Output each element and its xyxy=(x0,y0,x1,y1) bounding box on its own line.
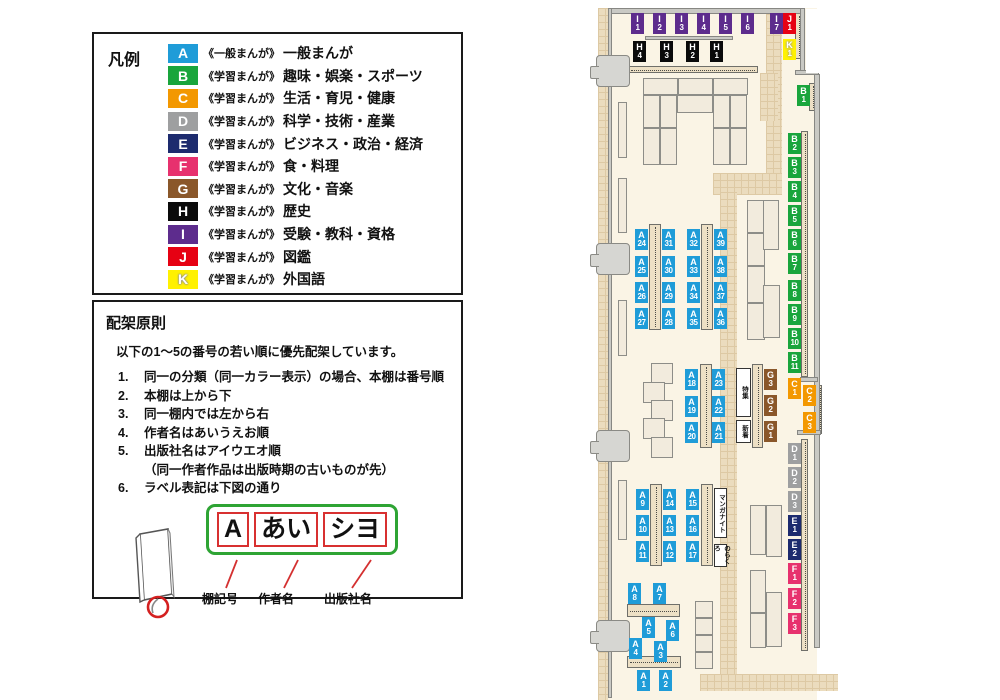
door xyxy=(596,55,630,87)
map-shelf-label-I5: I5 xyxy=(719,13,732,34)
map-shelf-label-B5: B5 xyxy=(788,205,801,226)
shelf-label-number: 3 xyxy=(793,624,797,632)
wall xyxy=(800,377,818,382)
map-shelf-label-H2: H2 xyxy=(686,41,699,62)
shelf-label-number: 8 xyxy=(633,594,637,602)
wall xyxy=(645,36,733,40)
map-shelf-label-H4: H4 xyxy=(633,41,646,62)
map-shelf-label-B3: B3 xyxy=(788,157,801,178)
shelf-label-number: 9 xyxy=(641,500,645,508)
shelf-label-number: 1 xyxy=(802,96,806,104)
map-shelf-label-A19: A19 xyxy=(685,396,698,417)
shelf-label-number: 2 xyxy=(808,396,812,404)
shelf-block xyxy=(750,505,766,555)
shelf-label-number: 2 xyxy=(793,478,797,486)
bookshelf-strip xyxy=(649,224,661,330)
floor-map: I1I2I3I4I5I6I7J1K1H4H3H2H1B1B2B3B4B5B6B7… xyxy=(0,0,1000,700)
shelf-block xyxy=(763,200,779,250)
shelf-label-number: 25 xyxy=(638,267,646,275)
shelf-label-number: 4 xyxy=(702,24,706,32)
shelf-label-number: 10 xyxy=(639,526,647,534)
shelf-label-number: 4 xyxy=(793,192,797,200)
map-shelf-label-G3: G3 xyxy=(764,369,777,390)
map-shelf-label-B7: B7 xyxy=(788,253,801,274)
shelf-label-number: 3 xyxy=(793,168,797,176)
shelf-label-number: 17 xyxy=(689,552,697,560)
walkway xyxy=(598,8,608,700)
shelf-label-number: 3 xyxy=(808,423,812,431)
shelf-block xyxy=(713,95,730,128)
shelf-label-number: 9 xyxy=(793,315,797,323)
shelf-label-number: 23 xyxy=(715,380,723,388)
shelf-block xyxy=(618,178,627,233)
map-shelf-label-I4: I4 xyxy=(697,13,710,34)
shelf-label-number: 1 xyxy=(642,681,646,689)
shelf-label-number: 4 xyxy=(638,52,642,60)
shelf-label-number: 1 xyxy=(769,432,773,440)
shelf-label-number: 2 xyxy=(769,406,773,414)
shelf-label-number: 1 xyxy=(788,50,792,58)
shelf-block xyxy=(678,78,713,95)
map-shelf-label-E2: E2 xyxy=(788,539,801,560)
outside-area xyxy=(806,9,836,73)
map-shelf-label-A9: A9 xyxy=(636,489,649,510)
shelf-label-number: 22 xyxy=(715,407,723,415)
shelf-block xyxy=(643,95,660,128)
shelf-label-number: 6 xyxy=(746,24,750,32)
map-shelf-label-H1: H1 xyxy=(710,41,723,62)
map-shelf-label-A21: A21 xyxy=(712,422,725,443)
shelf-label-number: 35 xyxy=(690,319,698,327)
walkway xyxy=(700,674,838,691)
map-shelf-label-A16: A16 xyxy=(686,515,699,536)
shelf-label-number: 15 xyxy=(689,500,697,508)
map-shelf-label-A37: A37 xyxy=(714,282,727,303)
shelf-block xyxy=(750,570,766,613)
bookshelf-strip xyxy=(752,364,763,448)
map-shelf-label-I1: I1 xyxy=(631,13,644,34)
door-handle xyxy=(590,441,599,454)
map-shelf-label-A11: A11 xyxy=(636,541,649,562)
map-shelf-label-I2: I2 xyxy=(653,13,666,34)
door xyxy=(596,430,630,462)
shelf-label-number: 6 xyxy=(671,631,675,639)
map-shelf-label-A7: A7 xyxy=(653,583,666,604)
map-shelf-label-B2: B2 xyxy=(788,133,801,154)
shelf-label-number: 1 xyxy=(793,389,797,397)
bookshelf-strip xyxy=(801,131,808,377)
map-shelf-label-A3: A3 xyxy=(654,641,667,662)
map-shelf-label-F3: F3 xyxy=(788,613,801,634)
map-shelf-label-A33: A33 xyxy=(687,256,700,277)
map-shelf-label-A31: A31 xyxy=(662,229,675,250)
door-handle xyxy=(590,254,599,267)
shelf-label-number: 2 xyxy=(793,144,797,152)
map-shelf-label-A29: A29 xyxy=(662,282,675,303)
shelf-label-number: 1 xyxy=(788,24,792,32)
shelf-block xyxy=(695,618,713,635)
shelf-label-number: 13 xyxy=(666,526,674,534)
shelf-label-number: 1 xyxy=(636,24,640,32)
map-shelf-label-A17: A17 xyxy=(686,541,699,562)
bookshelf-strip xyxy=(628,66,758,73)
shelf-block xyxy=(651,363,673,384)
map-sign-3: のらくろ xyxy=(714,544,727,567)
bookshelf-strip xyxy=(701,224,713,330)
map-shelf-label-A6: A6 xyxy=(666,620,679,641)
map-shelf-label-D1: D1 xyxy=(788,443,801,464)
shelf-label-number: 34 xyxy=(690,293,698,301)
shelf-label-number: 30 xyxy=(665,267,673,275)
shelf-block xyxy=(643,418,665,439)
map-shelf-label-A32: A32 xyxy=(687,229,700,250)
shelf-label-number: 28 xyxy=(665,319,673,327)
door-handle xyxy=(590,631,599,644)
shelf-label-number: 5 xyxy=(724,24,728,32)
shelf-block xyxy=(643,78,678,95)
shelf-label-number: 3 xyxy=(665,52,669,60)
shelf-label-number: 21 xyxy=(715,433,723,441)
wall xyxy=(814,74,820,648)
shelf-label-number: 18 xyxy=(688,380,696,388)
map-shelf-label-K1: K1 xyxy=(783,39,796,60)
map-shelf-label-A4: A4 xyxy=(629,638,642,659)
shelf-label-number: 1 xyxy=(793,526,797,534)
shelf-label-number: 7 xyxy=(658,594,662,602)
shelf-block xyxy=(651,437,673,458)
shelf-label-number: 31 xyxy=(665,240,673,248)
shelf-label-number: 11 xyxy=(639,552,646,560)
shelf-block xyxy=(695,601,713,618)
map-shelf-label-D2: D2 xyxy=(788,467,801,488)
map-shelf-label-A34: A34 xyxy=(687,282,700,303)
shelf-block xyxy=(618,300,627,356)
map-shelf-label-A27: A27 xyxy=(635,308,648,329)
shelf-label-number: 3 xyxy=(659,652,663,660)
shelf-label-number: 3 xyxy=(680,24,684,32)
map-shelf-label-A38: A38 xyxy=(714,256,727,277)
map-shelf-label-B8: B8 xyxy=(788,280,801,301)
shelf-block xyxy=(730,95,747,128)
map-shelf-label-D3: D3 xyxy=(788,491,801,512)
shelf-block xyxy=(695,635,713,652)
shelf-block xyxy=(643,128,660,165)
shelf-label-number: 8 xyxy=(793,291,797,299)
map-shelf-label-A36: A36 xyxy=(714,308,727,329)
map-shelf-label-A24: A24 xyxy=(635,229,648,250)
map-shelf-label-A8: A8 xyxy=(628,583,641,604)
shelf-label-number: 32 xyxy=(690,240,698,248)
shelf-label-number: 16 xyxy=(689,526,697,534)
map-shelf-label-A25: A25 xyxy=(635,256,648,277)
shelf-label-number: 19 xyxy=(688,407,696,415)
shelf-block xyxy=(660,95,677,128)
shelf-label-number: 5 xyxy=(793,216,797,224)
shelf-block xyxy=(750,613,766,648)
shelf-block xyxy=(713,128,730,165)
map-shelf-label-I6: I6 xyxy=(741,13,754,34)
map-shelf-label-B1: B1 xyxy=(797,85,810,106)
shelf-label-number: 2 xyxy=(793,550,797,558)
map-shelf-label-A35: A35 xyxy=(687,308,700,329)
shelf-label-number: 20 xyxy=(688,433,696,441)
shelf-label-number: 7 xyxy=(793,264,797,272)
map-shelf-label-E1: E1 xyxy=(788,515,801,536)
shelf-label-number: 5 xyxy=(647,628,651,636)
bookshelf-strip xyxy=(801,439,808,651)
shelf-label-number: 1 xyxy=(793,454,797,462)
map-shelf-label-A20: A20 xyxy=(685,422,698,443)
shelf-label-number: 7 xyxy=(775,24,779,32)
map-shelf-label-A26: A26 xyxy=(635,282,648,303)
map-shelf-label-A39: A39 xyxy=(714,229,727,250)
map-shelf-label-A5: A5 xyxy=(642,617,655,638)
map-shelf-label-B9: B9 xyxy=(788,304,801,325)
shelf-label-number: 24 xyxy=(638,240,646,248)
shelf-label-number: 3 xyxy=(793,502,797,510)
shelf-label-number: 10 xyxy=(791,339,799,347)
map-shelf-label-A22: A22 xyxy=(712,396,725,417)
shelf-label-number: 37 xyxy=(717,293,725,301)
shelf-label-number: 6 xyxy=(793,240,797,248)
map-sign-2: マンガナイト xyxy=(714,488,727,538)
shelf-label-number: 29 xyxy=(665,293,673,301)
wall xyxy=(608,8,612,698)
shelf-label-number: 2 xyxy=(658,24,662,32)
map-shelf-label-F1: F1 xyxy=(788,563,801,584)
map-shelf-label-C3: C3 xyxy=(803,412,816,433)
map-shelf-label-A2: A2 xyxy=(659,670,672,691)
map-shelf-label-A30: A30 xyxy=(662,256,675,277)
shelf-label-number: 2 xyxy=(691,52,695,60)
map-shelf-label-A28: A28 xyxy=(662,308,675,329)
bookshelf-strip xyxy=(627,604,680,617)
bookshelf-strip xyxy=(650,484,662,566)
shelf-label-number: 14 xyxy=(666,500,674,508)
shelf-label-number: 33 xyxy=(690,267,698,275)
shelf-label-number: 11 xyxy=(791,363,798,371)
map-shelf-label-F2: F2 xyxy=(788,588,801,609)
map-shelf-label-J1: J1 xyxy=(783,13,796,34)
map-sign-0: 特集 xyxy=(736,368,751,417)
map-shelf-label-I7: I7 xyxy=(770,13,783,34)
map-shelf-label-B11: B11 xyxy=(788,352,801,373)
door xyxy=(596,243,630,275)
map-shelf-label-B10: B10 xyxy=(788,328,801,349)
shelf-label-number: 1 xyxy=(793,574,797,582)
map-shelf-label-A23: A23 xyxy=(712,369,725,390)
shelf-block xyxy=(677,95,713,113)
map-shelf-label-A18: A18 xyxy=(685,369,698,390)
door-handle xyxy=(590,66,599,79)
map-shelf-label-A15: A15 xyxy=(686,489,699,510)
map-shelf-label-C1: C1 xyxy=(788,378,801,399)
shelf-label-number: 2 xyxy=(664,681,668,689)
map-shelf-label-A10: A10 xyxy=(636,515,649,536)
shelf-block xyxy=(713,78,748,95)
wall xyxy=(800,8,805,72)
shelf-label-number: 27 xyxy=(638,319,646,327)
map-shelf-label-C2: C2 xyxy=(803,385,816,406)
bookshelf-strip xyxy=(700,364,712,448)
door xyxy=(596,620,630,652)
shelf-label-number: 4 xyxy=(634,649,638,657)
map-shelf-label-A1: A1 xyxy=(637,670,650,691)
map-shelf-label-A13: A13 xyxy=(663,515,676,536)
map-shelf-label-G2: G2 xyxy=(764,395,777,416)
shelf-label-number: 26 xyxy=(638,293,646,301)
map-sign-1: 新着 xyxy=(736,420,751,443)
walkway xyxy=(760,73,778,121)
shelf-label-number: 36 xyxy=(717,319,725,327)
map-shelf-label-G1: G1 xyxy=(764,421,777,442)
shelf-label-number: 12 xyxy=(666,552,674,560)
shelf-block xyxy=(730,128,747,165)
shelf-block xyxy=(660,128,677,165)
shelf-block xyxy=(766,505,782,557)
shelf-label-number: 38 xyxy=(717,267,725,275)
map-shelf-label-A12: A12 xyxy=(663,541,676,562)
shelf-block xyxy=(618,102,627,158)
shelf-block xyxy=(766,592,782,647)
map-shelf-label-I3: I3 xyxy=(675,13,688,34)
map-shelf-label-H3: H3 xyxy=(660,41,673,62)
shelf-block xyxy=(618,480,627,540)
map-shelf-label-B4: B4 xyxy=(788,181,801,202)
map-shelf-label-A14: A14 xyxy=(663,489,676,510)
map-shelf-label-B6: B6 xyxy=(788,229,801,250)
shelf-block xyxy=(763,285,780,338)
shelf-label-number: 39 xyxy=(717,240,725,248)
shelf-label-number: 2 xyxy=(793,599,797,607)
shelf-block xyxy=(695,652,713,669)
shelf-label-number: 3 xyxy=(769,380,773,388)
shelf-label-number: 1 xyxy=(715,52,719,60)
